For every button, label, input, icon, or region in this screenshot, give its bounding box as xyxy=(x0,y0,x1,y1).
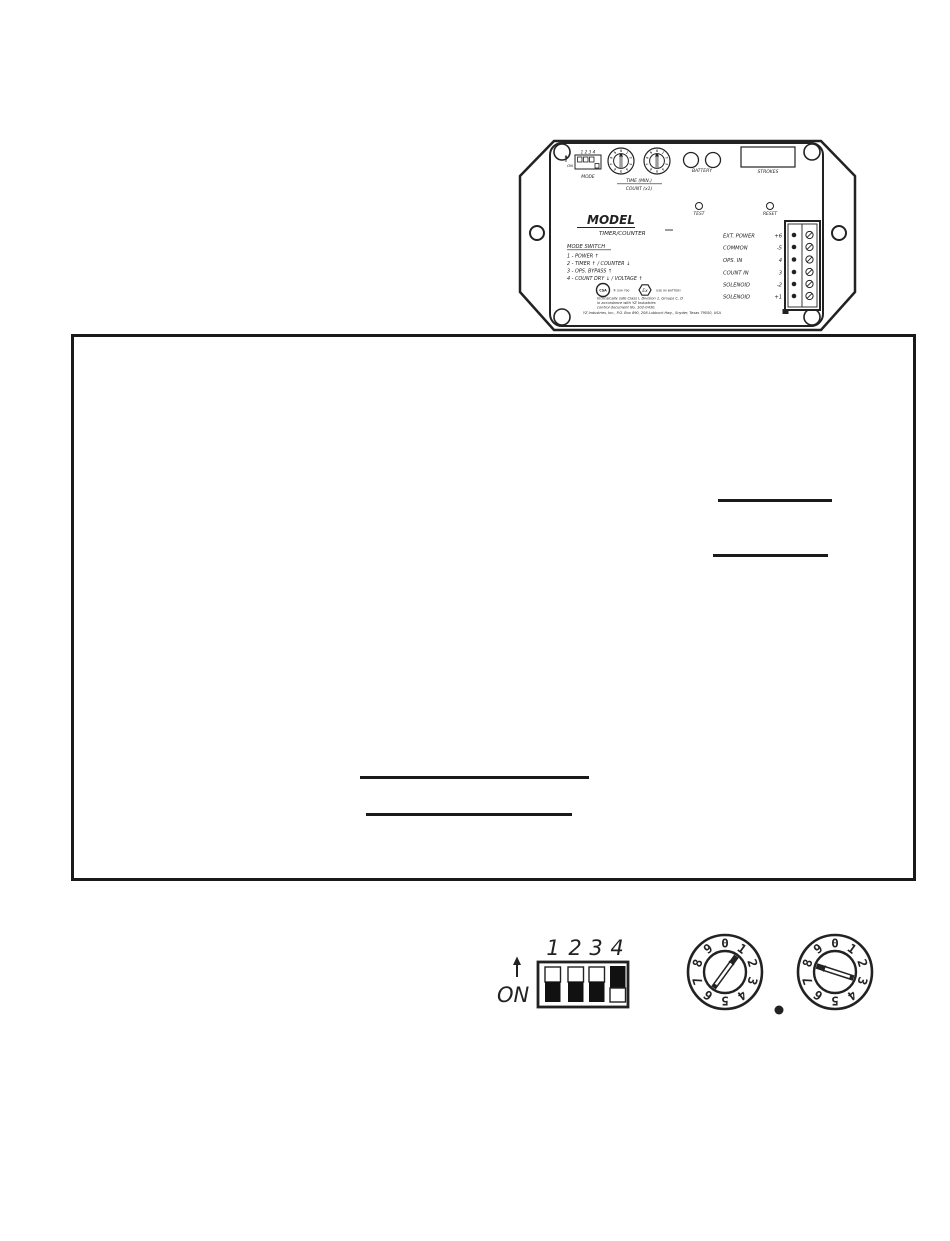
document-page: { "device": { "dip_numbers": "1 2 3 4", … xyxy=(0,0,950,1241)
terminal-block xyxy=(783,221,821,314)
csa-text: ® SVA 790 xyxy=(613,289,630,293)
blank-underline-3 xyxy=(360,776,589,779)
terminal-num: 3 xyxy=(779,271,782,277)
mode-label: MODE xyxy=(581,174,595,180)
terminal-dot-icon xyxy=(792,245,797,250)
terminal-num: -2 xyxy=(777,283,782,289)
dip-col-label-1: 1 xyxy=(546,936,559,960)
ex-mark: Ex xyxy=(642,288,648,294)
mounting-hole-icon xyxy=(530,226,544,240)
terminal-num: +6 xyxy=(774,234,782,240)
dial-digit: 5 xyxy=(656,169,658,173)
instruction-text-box xyxy=(71,334,916,881)
terminal-label: SOLENOID xyxy=(723,283,750,289)
timer-counter-device-drawing: 1 2 3 4 ON MODE 0123456789 0123456789 TI… xyxy=(515,138,860,333)
dip-actuator-off xyxy=(568,982,584,1002)
test-button xyxy=(696,203,703,210)
corner-screw-icon xyxy=(554,309,570,325)
terminal-dot-icon xyxy=(792,294,797,299)
blank-underline-4 xyxy=(366,813,572,816)
dial-digit: 0 xyxy=(721,936,729,951)
dip-slot-empty xyxy=(589,967,605,982)
decimal-point-icon xyxy=(775,1006,784,1015)
blank-underline-1 xyxy=(718,499,832,502)
count-label: COUNT (x1) xyxy=(626,186,653,192)
dial-digit: 0 xyxy=(620,149,622,153)
manufacturer-address: YZ Industries, Inc., P.O. Box 890, 208 L… xyxy=(583,311,721,315)
right-rotary-dial-figure: 0123456789 xyxy=(798,935,872,1009)
faceplate xyxy=(550,143,823,326)
csa-mark: CSA xyxy=(599,289,607,293)
dip-col-label-2: 2 xyxy=(568,936,581,960)
dial-digit: 0 xyxy=(656,149,658,153)
corner-screw-icon xyxy=(804,309,820,325)
dial-digit: 5 xyxy=(721,994,729,1009)
ex-text: USE 9V BATTERY xyxy=(656,289,681,293)
terminal-dot-icon xyxy=(792,282,797,287)
mode-switch-item-1: 1 - POWER ↑ xyxy=(567,254,599,260)
time-rotary-dial: 0123456789 xyxy=(608,148,634,174)
left-rotary-dial-figure: 0123456789 xyxy=(688,935,762,1009)
corner-screw-icon xyxy=(804,144,820,160)
on-label: ON xyxy=(567,163,573,168)
mode-switch-title: MODE SWITCH xyxy=(567,244,605,250)
dip-switch-figure: 1 2 3 4 ON xyxy=(497,936,628,1007)
dip-actuator-on xyxy=(610,966,626,988)
reset-label: RESET xyxy=(763,211,777,217)
dip-slot-2 xyxy=(584,157,589,162)
terminal-dot-icon xyxy=(792,233,797,238)
intrinsic-line-2: in accordance with YZ Industries xyxy=(597,301,656,305)
reset-button xyxy=(767,203,774,210)
battery-lamp-icon xyxy=(706,153,721,168)
time-label: TIME (MIN.) xyxy=(626,178,652,184)
intrinsic-line-3: control document No. 102-0430. xyxy=(597,306,656,310)
intrinsic-line-1: Intrinsically safe Class I, Division 1, … xyxy=(597,297,683,301)
mode-switch-item-3: 3 - OPS. BYPASS ↑ xyxy=(567,269,612,275)
dip-slot-4 xyxy=(595,164,599,169)
strokes-display xyxy=(741,147,795,167)
blank-underline-2 xyxy=(713,554,828,557)
battery-lamp-icon xyxy=(684,153,699,168)
test-label: TEST xyxy=(694,211,705,217)
terminal-label: EXT. POWER xyxy=(723,234,755,240)
dial-digit: 5 xyxy=(831,994,839,1009)
mounting-hole-icon xyxy=(832,226,846,240)
strokes-label: STROKES xyxy=(758,169,779,175)
settings-illustrations: 1 2 3 4 ON 0123456789 0123456789 xyxy=(490,925,890,1025)
dip-slot-empty xyxy=(610,988,626,1002)
dip-slot-3 xyxy=(590,157,595,162)
dip-col-label-4: 4 xyxy=(610,936,623,960)
dip-slot-empty xyxy=(545,967,561,982)
dip-actuator-off xyxy=(545,982,561,1002)
dip-slot-1 xyxy=(578,157,583,162)
dip-numbers-label: 1 2 3 4 xyxy=(581,150,596,155)
terminal-num: -5 xyxy=(777,246,783,252)
dial-digit: 5 xyxy=(620,169,622,173)
on-direction-arrowhead-icon xyxy=(513,957,521,966)
terminal-label: OPS. IN xyxy=(723,258,742,264)
dip-col-label-3: 3 xyxy=(589,936,602,960)
terminal-label: COMMON xyxy=(723,246,748,252)
dip-slot-empty xyxy=(568,967,584,982)
terminal-label: SOLENOID xyxy=(723,295,750,301)
count-rotary-dial: 0123456789 xyxy=(644,148,670,174)
block-key-mark xyxy=(783,309,789,314)
mode-switch-item-2: 2 - TIMER ↑ / COUNTER ↓ xyxy=(567,261,630,267)
terminal-dot-icon xyxy=(792,257,797,262)
corner-screw-icon xyxy=(554,144,570,160)
dip-actuator-off xyxy=(589,982,605,1002)
mode-switch-item-4: 4 - COUNT DRY ↓ / VOLTAGE ↑ xyxy=(567,276,643,282)
terminal-num: 4 xyxy=(779,258,782,264)
model-label: MODEL xyxy=(587,213,635,227)
on-direction-label: ON xyxy=(497,983,530,1007)
model-type-label: TIMER/COUNTER xyxy=(599,231,646,237)
battery-label: BATTERY xyxy=(692,168,713,174)
dial-digit: 0 xyxy=(831,936,839,951)
terminal-label: COUNT IN xyxy=(723,271,749,277)
terminal-dot-icon xyxy=(792,270,797,275)
terminal-num: +1 xyxy=(774,295,782,301)
